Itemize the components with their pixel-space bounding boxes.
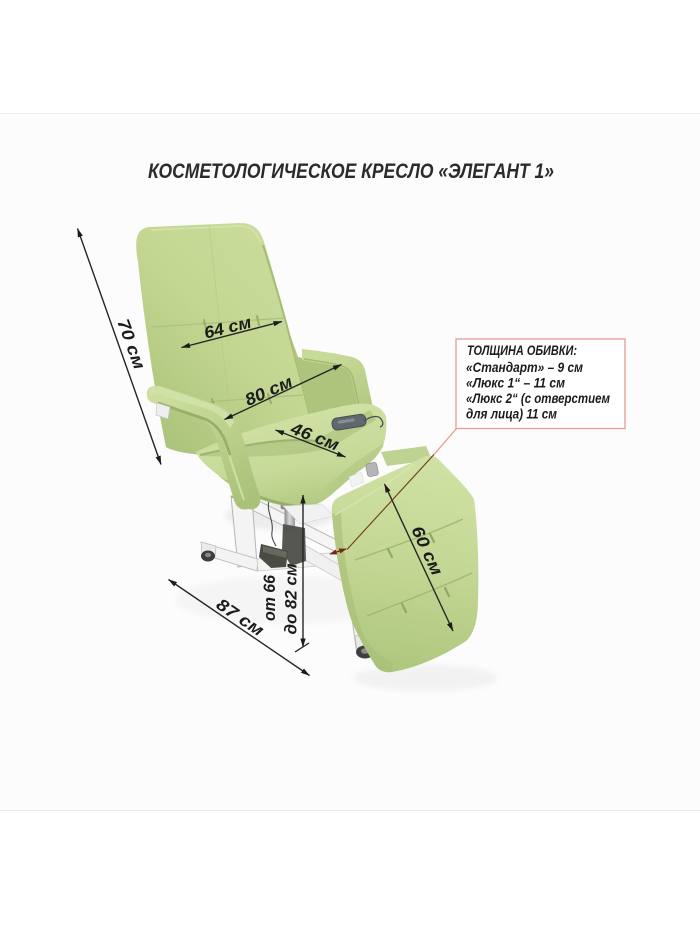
svg-text:КОСМЕТОЛОГИЧЕСКОЕ КРЕСЛО «ЭЛЕГ: КОСМЕТОЛОГИЧЕСКОЕ КРЕСЛО «ЭЛЕГАНТ 1»	[148, 160, 554, 183]
svg-text:для лица) 11 см: для лица) 11 см	[466, 407, 557, 422]
svg-text:«Стандарт» – 9 см: «Стандарт» – 9 см	[466, 360, 583, 375]
svg-text:от 66: от 66	[261, 574, 279, 621]
svg-text:ТОЛЩИНА ОБИВКИ:: ТОЛЩИНА ОБИВКИ:	[467, 343, 577, 358]
svg-text:до 82 см: до 82 см	[283, 564, 301, 635]
svg-text:«Люкс 2“ (с отверстием: «Люкс 2“ (с отверстием	[466, 391, 610, 406]
svg-text:«Люкс 1“ – 11 см: «Люкс 1“ – 11 см	[466, 376, 565, 391]
